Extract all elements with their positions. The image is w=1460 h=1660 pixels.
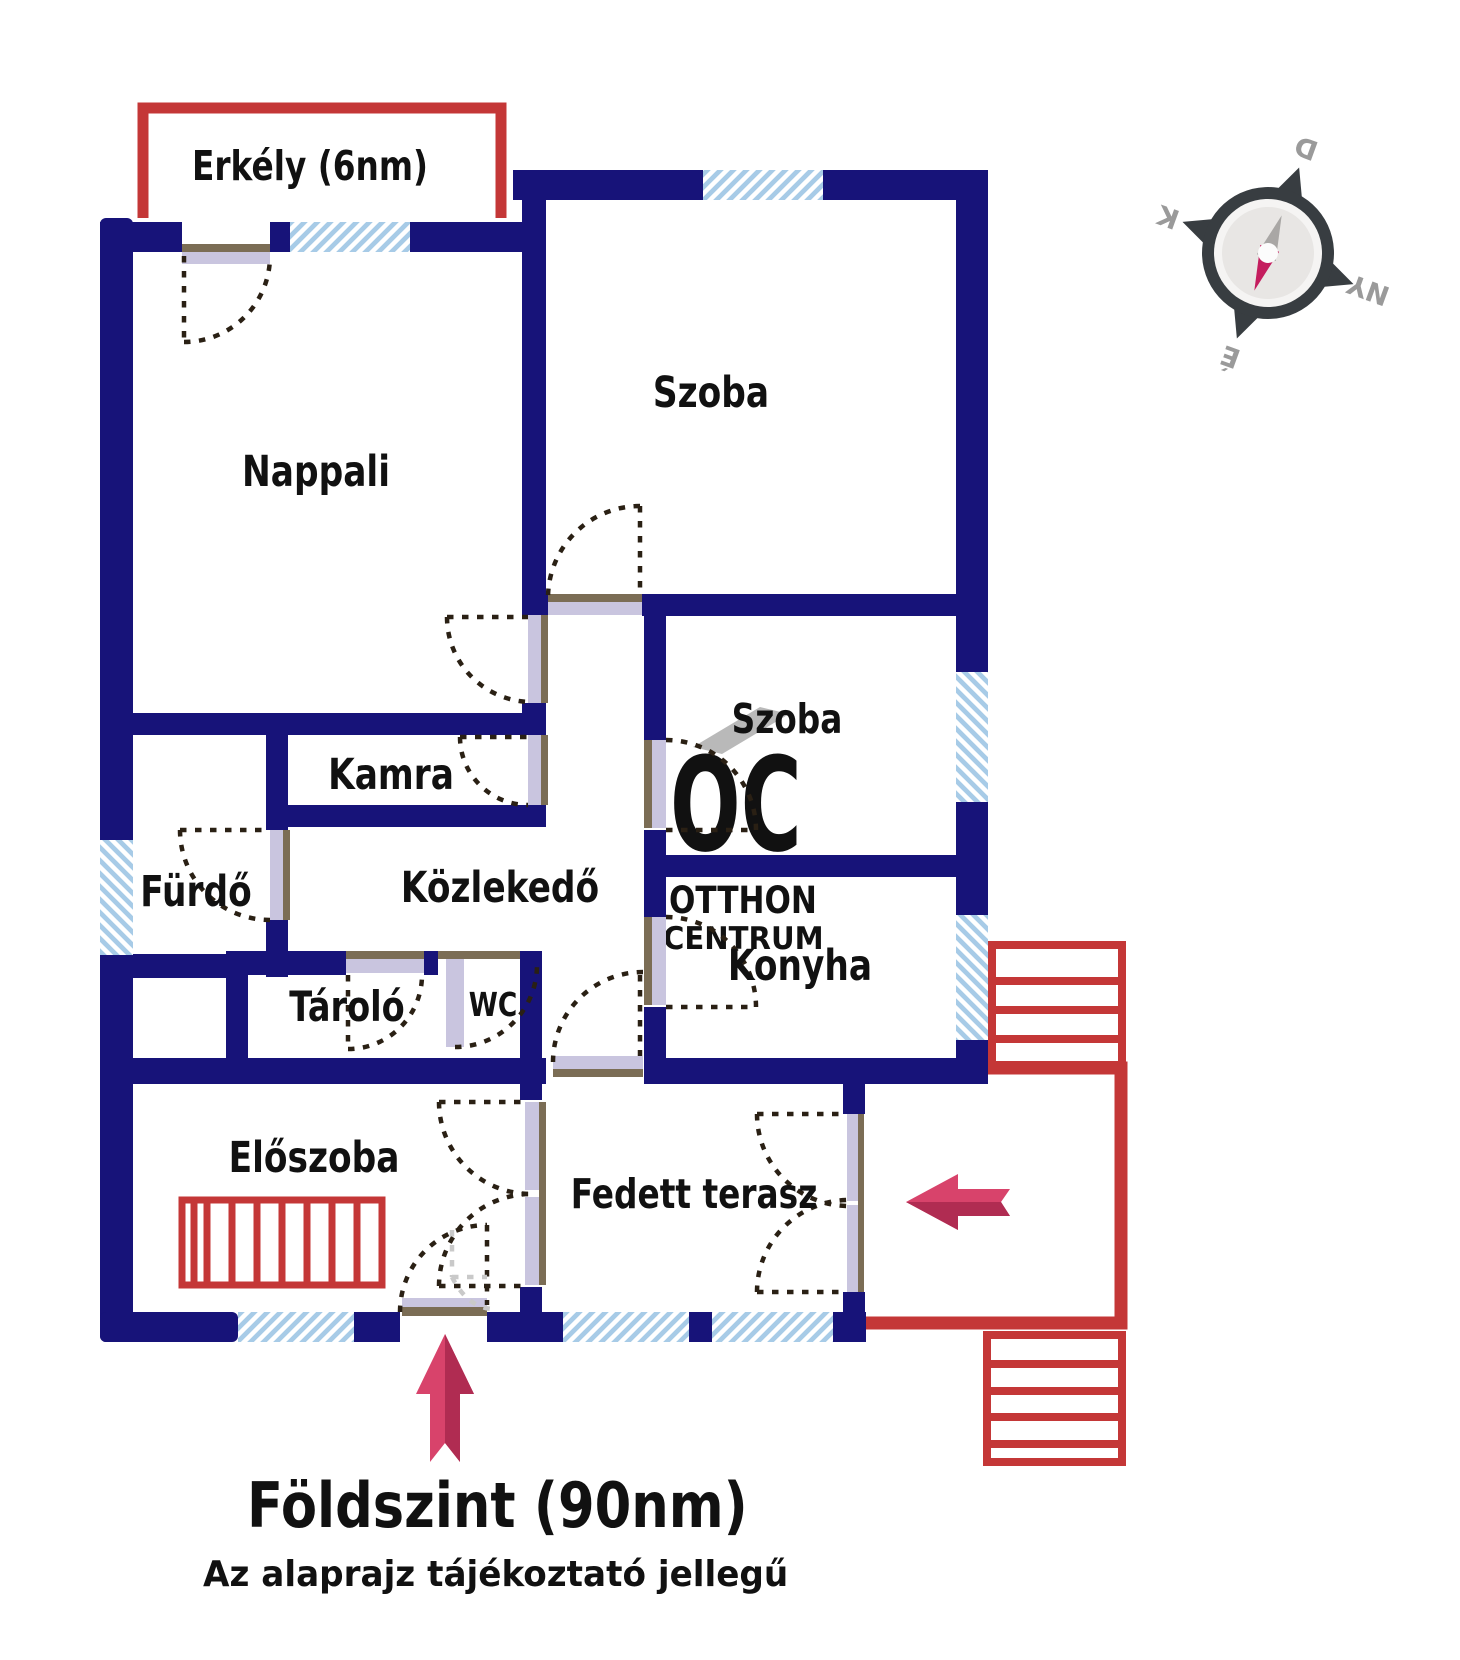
- compass-rose: É D K NY: [1114, 93, 1432, 416]
- window-eloszoba: [238, 1312, 354, 1342]
- stairs-eloszoba: [182, 1200, 382, 1285]
- window-nappali: [290, 222, 410, 252]
- floorplan-drawing: OC OTTHON CENTRUM: [0, 0, 1460, 1660]
- room-label-kitchen: Konyha: [728, 941, 872, 991]
- stairs-upper-right: [992, 945, 1122, 1065]
- room-label-room1: Szoba: [653, 368, 769, 418]
- window-terasz-1: [563, 1312, 689, 1342]
- compass-label-south: D: [1291, 129, 1323, 166]
- room-label-wc: WC: [469, 986, 517, 1025]
- floor-disclaimer: Az alaprajz tájékoztató jellegű: [203, 1553, 788, 1595]
- room-labels: Erkély (6nm) Nappali Szoba Szoba Kamra F…: [140, 142, 872, 1217]
- room-label-entry-hall: Előszoba: [229, 1133, 400, 1183]
- room-label-covered-terrace: Fedett terasz: [571, 1170, 818, 1217]
- entrance-arrow-main: [416, 1334, 474, 1462]
- room-label-bathroom: Fürdő: [140, 867, 251, 917]
- title-block: Földszint (90nm) Az alaprajz tájékoztató…: [203, 1470, 788, 1595]
- compass-label-north: É: [1216, 338, 1244, 374]
- stairs-lower-right: [987, 1335, 1122, 1462]
- window-furdo: [100, 840, 133, 955]
- entrance-arrow-porch: [906, 1174, 1010, 1230]
- watermark-line1: OTTHON: [669, 879, 817, 922]
- compass-label-east: K: [1152, 198, 1183, 235]
- floorplan-page: OC OTTHON CENTRUM: [0, 0, 1460, 1660]
- room-label-storage: Tároló: [289, 982, 404, 1031]
- window-szoba1: [703, 170, 823, 200]
- window-szoba2: [956, 672, 988, 802]
- floor-title: Földszint (90nm): [247, 1470, 748, 1542]
- room-label-balcony: Erkély (6nm): [192, 142, 428, 189]
- window-terasz-2: [712, 1312, 833, 1342]
- room-label-living: Nappali: [242, 447, 390, 497]
- room-label-hallway: Közlekedő: [401, 863, 599, 913]
- room-label-room2: Szoba: [732, 695, 843, 742]
- window-konyha: [956, 915, 988, 1040]
- compass-label-west: NY: [1343, 267, 1394, 311]
- watermark-logo: OC: [670, 730, 802, 881]
- room-label-pantry: Kamra: [328, 750, 454, 800]
